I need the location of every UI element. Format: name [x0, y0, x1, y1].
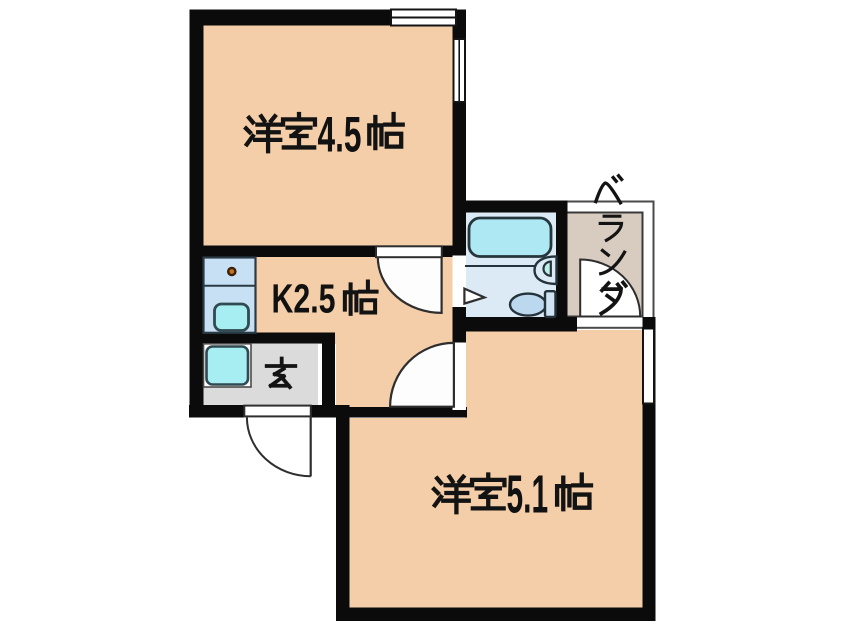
- svg-text:K2.5: K2.5: [272, 275, 336, 321]
- svg-text:4.5: 4.5: [318, 107, 362, 163]
- svg-text:5.1: 5.1: [507, 465, 549, 525]
